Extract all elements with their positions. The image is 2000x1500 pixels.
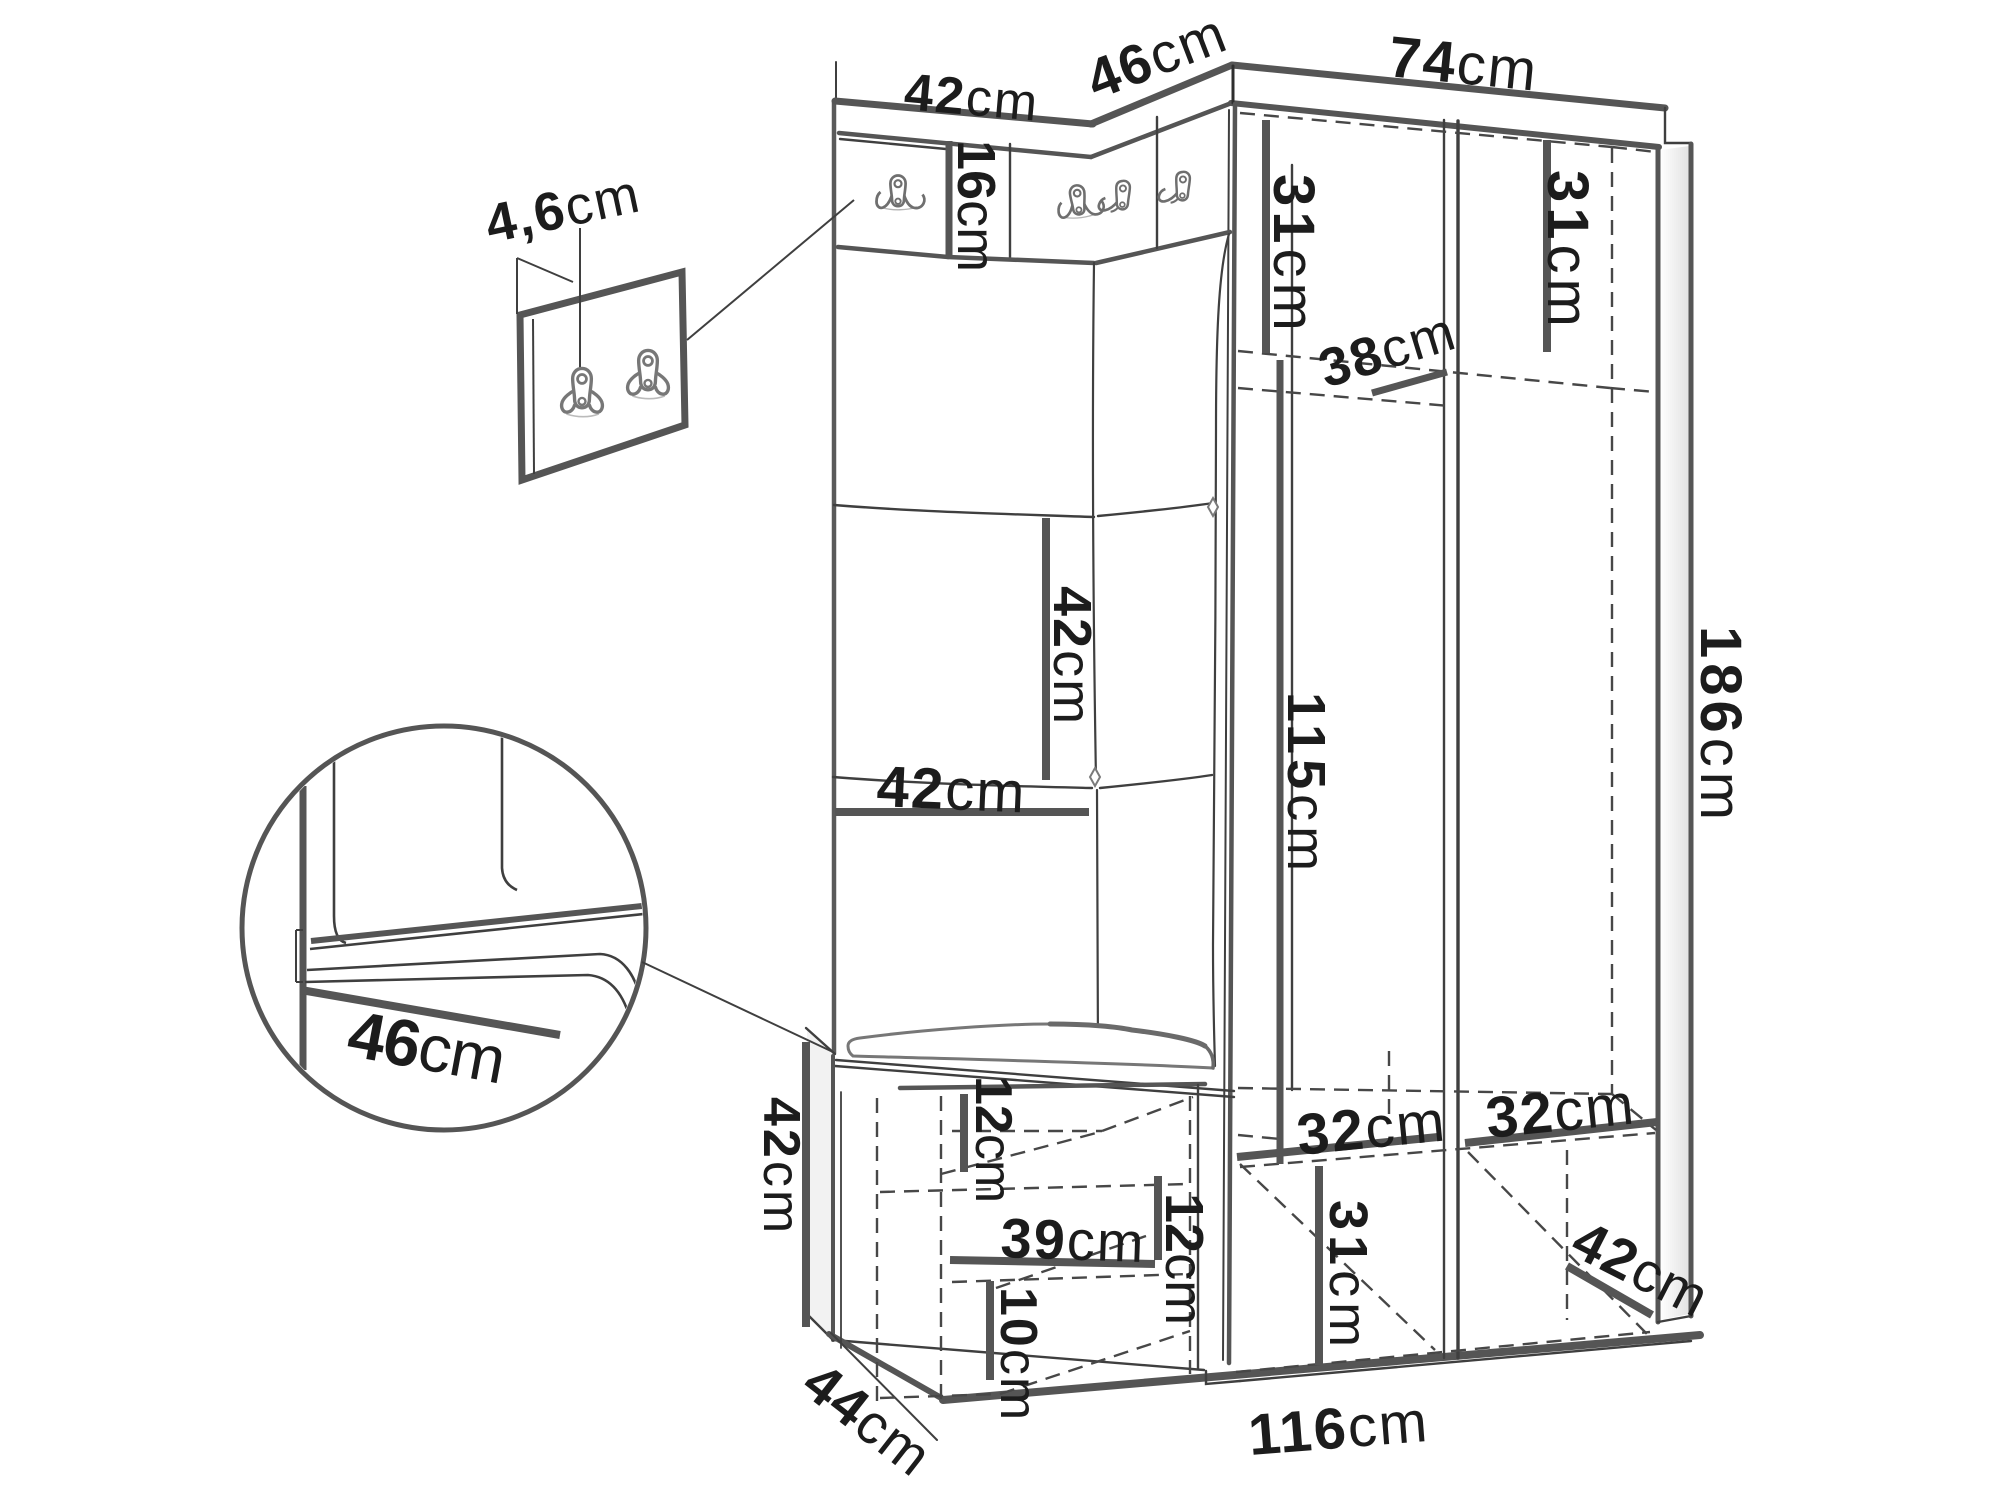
- svg-text:38cm: 38cm: [1312, 301, 1463, 399]
- svg-text:31cm: 31cm: [1318, 1200, 1378, 1352]
- svg-text:16cm: 16cm: [946, 140, 1006, 272]
- svg-text:42cm: 42cm: [902, 63, 1042, 133]
- svg-text:32cm: 32cm: [1483, 1071, 1639, 1151]
- svg-text:10cm: 10cm: [989, 1287, 1047, 1422]
- svg-text:74cm: 74cm: [1386, 24, 1542, 104]
- svg-text:12cm: 12cm: [964, 1076, 1022, 1203]
- svg-text:116cm: 116cm: [1246, 1389, 1431, 1468]
- svg-text:39cm: 39cm: [1000, 1206, 1147, 1274]
- svg-text:31cm: 31cm: [1261, 174, 1326, 336]
- svg-text:12cm: 12cm: [1154, 1193, 1214, 1325]
- svg-text:115cm: 115cm: [1276, 692, 1336, 876]
- svg-text:42cm: 42cm: [1042, 586, 1102, 726]
- svg-text:32cm: 32cm: [1294, 1088, 1450, 1168]
- svg-text:42cm: 42cm: [875, 754, 1028, 825]
- svg-text:186cm: 186cm: [1688, 626, 1753, 825]
- svg-text:42cm: 42cm: [752, 1097, 810, 1236]
- svg-text:4,6cm: 4,6cm: [480, 163, 646, 254]
- svg-text:31cm: 31cm: [1535, 170, 1600, 332]
